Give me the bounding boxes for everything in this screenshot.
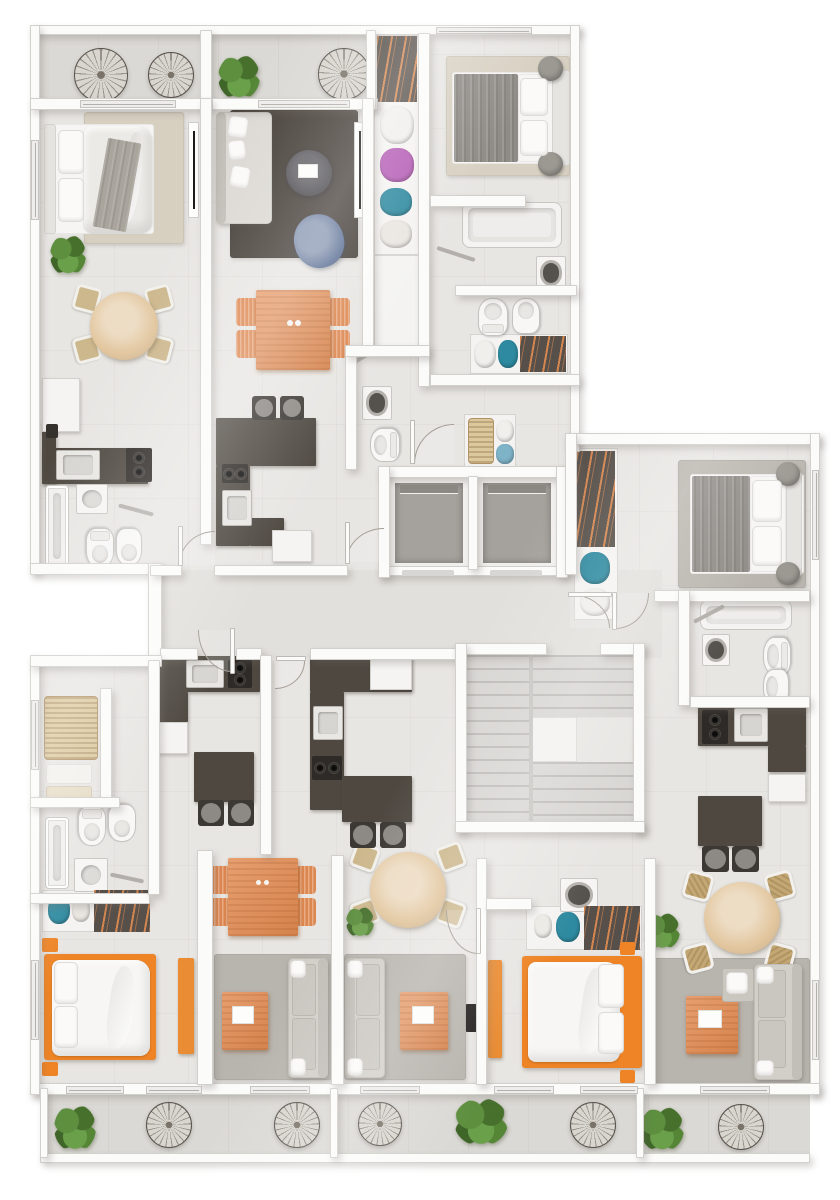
nightstand [42, 938, 58, 952]
pillow [54, 962, 78, 1004]
pillow [58, 178, 84, 222]
window [31, 960, 39, 1040]
pillow [752, 526, 782, 566]
dining-table [90, 292, 158, 360]
wicker-pendant [718, 1104, 764, 1150]
plant [454, 1098, 508, 1146]
window [31, 140, 39, 220]
kitchen-cabinet [768, 774, 806, 802]
wall [100, 688, 112, 800]
wardrobe-hangers [377, 36, 417, 102]
staircase-flight [467, 655, 533, 821]
wall [236, 648, 262, 660]
laundry-basket [44, 696, 98, 760]
kitchen-sink [734, 708, 768, 742]
kitchen-island [342, 776, 412, 822]
wall [418, 33, 430, 387]
tv-stand [178, 958, 194, 1054]
towel [496, 444, 514, 464]
window [436, 27, 532, 34]
wall [150, 565, 182, 576]
wall [197, 850, 213, 1085]
pillow [347, 1058, 363, 1076]
bar-stool [280, 396, 304, 420]
wall [30, 563, 162, 575]
elevator [478, 478, 556, 568]
book [232, 1006, 254, 1024]
stove [222, 464, 248, 483]
wall [468, 476, 478, 570]
floor-plan [0, 0, 840, 1200]
bar-stool [702, 846, 729, 872]
kitchen-counter [768, 746, 806, 772]
tv-stand [488, 960, 502, 1058]
book [412, 1006, 434, 1024]
shower [46, 486, 68, 566]
bidet [108, 804, 136, 842]
window [31, 700, 39, 770]
plant [218, 54, 260, 100]
kitchen-cabinet [370, 656, 412, 690]
pillow [290, 960, 306, 978]
dining-table [370, 852, 446, 928]
shelf-hangers [520, 336, 566, 372]
kitchen-sink [56, 450, 100, 480]
headboard [552, 70, 570, 166]
towel [498, 340, 518, 368]
stair-landing [531, 717, 577, 762]
wall [214, 565, 348, 576]
door-leaf [276, 656, 306, 661]
bathtub [462, 202, 562, 248]
wall [455, 643, 467, 833]
staircase-flight [533, 655, 633, 717]
towel [496, 420, 514, 442]
pillow [598, 1012, 624, 1054]
plate [264, 880, 269, 885]
wall [310, 648, 458, 660]
pillow [227, 115, 250, 140]
nightstand [42, 1062, 58, 1076]
pillow [756, 966, 774, 984]
window [258, 100, 350, 108]
bathroom-sink [74, 858, 108, 892]
chair [296, 866, 316, 894]
washing-machine [362, 386, 392, 420]
door-leaf [410, 420, 415, 464]
wall [160, 648, 198, 660]
wall [455, 643, 547, 655]
elevator [390, 478, 468, 568]
wall [486, 898, 532, 910]
window [66, 1086, 124, 1094]
clothes [580, 552, 610, 584]
wall [565, 433, 577, 575]
pillow [54, 1006, 78, 1048]
door-leaf [230, 628, 235, 674]
wall [30, 797, 120, 808]
door-leaf [345, 522, 350, 564]
clothes [380, 188, 412, 216]
wall [260, 655, 272, 855]
door-leaf [178, 526, 183, 566]
window [580, 1086, 638, 1094]
wall [148, 660, 160, 895]
wall [362, 98, 374, 348]
wall [644, 858, 656, 1085]
pillow [290, 1058, 306, 1076]
pillow [227, 139, 247, 161]
wall-balcony-divider [200, 30, 212, 108]
window [80, 100, 176, 108]
radiator [188, 122, 199, 218]
plant [50, 234, 86, 276]
clothes [534, 914, 552, 938]
blanket [454, 74, 518, 162]
plate [287, 320, 293, 326]
wall [476, 858, 487, 1085]
toilet [78, 806, 106, 846]
sofa-back [216, 112, 226, 224]
wicker-pendant [146, 1102, 192, 1148]
wicker-pendant [274, 1102, 320, 1148]
blanket [692, 476, 750, 572]
bar-stool [228, 800, 254, 826]
wicker-pendant [74, 48, 128, 102]
bathroom-sink [76, 484, 108, 514]
magazine [298, 164, 318, 178]
nightstand [620, 1070, 635, 1083]
dining-table [256, 290, 330, 370]
pillow [520, 78, 548, 116]
wall [678, 590, 690, 706]
plate [256, 880, 261, 885]
bar-stool [252, 396, 276, 420]
chair [296, 898, 316, 926]
wall [148, 563, 162, 660]
sofa-back [792, 964, 802, 1080]
wall [455, 821, 645, 833]
bathtub [700, 600, 792, 630]
stove [126, 448, 152, 482]
bar-stool [198, 800, 224, 826]
wardrobe [374, 255, 420, 347]
wall [331, 855, 344, 1085]
elevator-door [490, 570, 542, 576]
toilet [370, 428, 400, 462]
door-leaf [612, 592, 617, 630]
window [250, 1086, 310, 1094]
kitchen-sink [222, 490, 252, 526]
pillow [598, 964, 624, 1008]
book [698, 1010, 722, 1028]
stove [312, 756, 342, 780]
window [146, 1086, 202, 1094]
plant [640, 1106, 684, 1152]
pillow [520, 120, 548, 156]
kitchen-island [698, 796, 762, 846]
bar-stool [380, 822, 406, 848]
wicker-pendant [318, 48, 370, 100]
wall-balcony [40, 1153, 810, 1163]
wall [430, 374, 580, 386]
plate [295, 320, 301, 326]
wicker-pendant [358, 1102, 402, 1146]
wall-balcony-divider [636, 1088, 644, 1158]
window [494, 1086, 554, 1094]
wall [570, 25, 580, 452]
wall [200, 98, 212, 545]
laundry-basket [468, 418, 494, 464]
wall [690, 696, 810, 708]
chair [210, 898, 230, 926]
wall-balcony-divider [330, 1088, 338, 1158]
toilet [478, 298, 508, 336]
wall [430, 195, 526, 207]
staircase-flight [533, 762, 633, 821]
plant [346, 906, 374, 938]
chair [210, 866, 230, 894]
pillow [752, 480, 782, 522]
headboard [44, 124, 56, 234]
bidet [512, 298, 540, 334]
bidet [116, 528, 142, 566]
clothes [556, 912, 580, 942]
kitchen-island [194, 752, 254, 802]
wall [455, 285, 577, 296]
nightstand [620, 942, 635, 955]
wall-balcony [40, 1088, 48, 1158]
kitchen-counter [216, 418, 316, 466]
window [700, 1086, 770, 1094]
wall [30, 893, 150, 904]
closet-hangers [577, 451, 615, 547]
door-leaf [568, 592, 612, 597]
stove [702, 710, 728, 744]
dining-table [228, 858, 298, 936]
elevator-door [402, 570, 454, 576]
wall [345, 345, 357, 470]
chair [236, 330, 258, 358]
pillow [228, 164, 252, 189]
window [812, 980, 819, 1060]
wicker-pendant [570, 1102, 616, 1148]
bar-stool [350, 822, 376, 848]
clothes [380, 220, 412, 248]
window [360, 1086, 420, 1094]
wall [345, 345, 430, 357]
door-leaf [476, 908, 481, 954]
wall [633, 643, 645, 833]
chair [328, 298, 350, 326]
pouf [776, 562, 800, 585]
washing-machine [702, 634, 730, 666]
stair-rail [529, 655, 533, 821]
pillow [726, 972, 748, 994]
coffee-machine [46, 424, 58, 438]
kitchen-sink [313, 706, 343, 740]
wicker-pendant [148, 52, 194, 98]
bar-stool [732, 846, 759, 872]
shower [46, 818, 68, 888]
towel [474, 340, 496, 368]
pillow [58, 130, 84, 174]
pillow [347, 960, 363, 978]
headboard [786, 472, 802, 576]
chair [236, 298, 258, 326]
window [812, 470, 819, 560]
wall [30, 655, 162, 667]
toilet [86, 528, 114, 568]
dining-table [704, 882, 780, 954]
linen [380, 106, 414, 144]
wall [565, 433, 820, 445]
pillow [756, 1060, 774, 1076]
kitchen-cabinet [272, 530, 312, 562]
clothes [380, 148, 414, 182]
sofa-back [318, 958, 328, 1078]
plant [54, 1104, 96, 1152]
towel [46, 764, 92, 784]
